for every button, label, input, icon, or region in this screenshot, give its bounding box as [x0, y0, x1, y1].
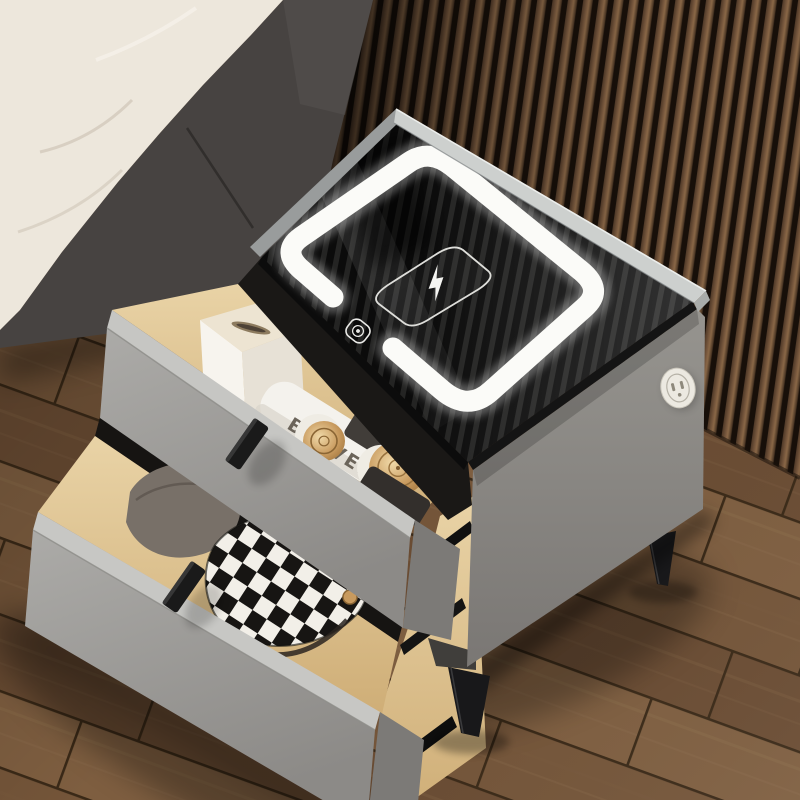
product-photo: Product photo of a smart LED nightstand …	[0, 0, 800, 800]
